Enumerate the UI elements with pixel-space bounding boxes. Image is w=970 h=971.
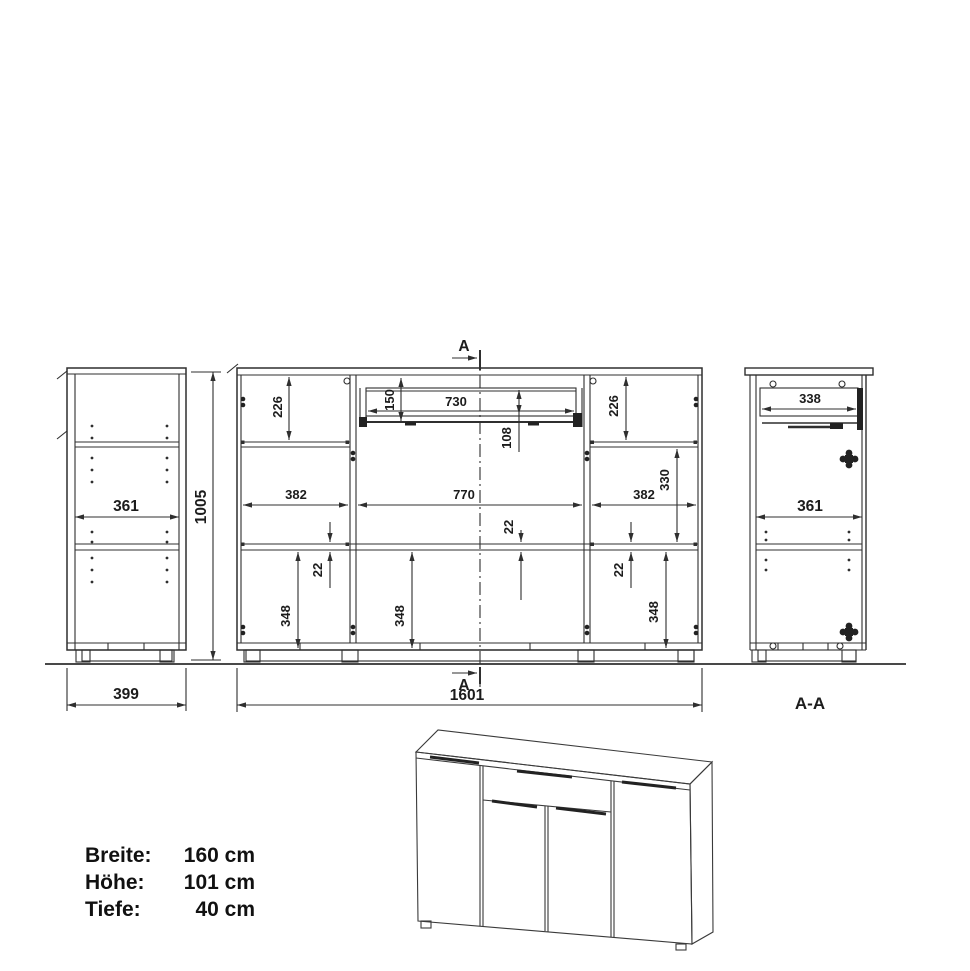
front-dim-226-right: 226 — [606, 395, 621, 417]
front-dim-770: 770 — [453, 487, 475, 502]
front-dim-22-right: 22 — [611, 563, 626, 577]
spec-label-breite: Breite: — [85, 842, 177, 869]
door-handles — [430, 757, 676, 814]
section-marker-a-top: A — [458, 338, 469, 355]
side-view — [57, 368, 221, 711]
section-marker-a-bottom: A — [458, 677, 469, 694]
spec-label-tiefe: Tiefe: — [85, 896, 177, 923]
section-dim-361: 361 — [797, 498, 823, 515]
front-dim-22-middle: 22 — [501, 520, 516, 534]
side-dim-399: 399 — [113, 686, 139, 703]
front-dim-348-right: 348 — [646, 601, 661, 623]
front-dim-348-middle: 348 — [392, 605, 407, 627]
front-dim-348-left: 348 — [278, 605, 293, 627]
front-dim-382-left: 382 — [285, 487, 307, 502]
spec-value-breite: 160 cm — [177, 842, 255, 869]
front-dim-150: 150 — [382, 389, 397, 411]
dimension-specs: Breite: 160 cm Höhe: 101 cm Tiefe: 40 cm — [85, 842, 255, 923]
hinge-marks — [241, 397, 699, 636]
front-dim-226-left: 226 — [270, 396, 285, 418]
side-dim-1005: 1005 — [193, 489, 210, 524]
hinge-plate-marks — [840, 450, 859, 642]
technical-drawing-svg: 361 1005 399 — [0, 0, 970, 971]
spec-row-tiefe: Tiefe: 40 cm — [85, 896, 255, 923]
section-dim-338: 338 — [799, 391, 821, 406]
front-dim-108: 108 — [499, 427, 514, 449]
front-dim-330: 330 — [657, 469, 672, 491]
furniture-dimension-drawing: 361 1005 399 — [0, 0, 970, 971]
section-title: A-A — [795, 694, 825, 713]
front-dim-22-left: 22 — [310, 563, 325, 577]
front-dim-382-right: 382 — [633, 487, 655, 502]
spec-value-tiefe: 40 cm — [177, 896, 255, 923]
spec-value-hoehe: 101 cm — [177, 869, 255, 896]
spec-row-breite: Breite: 160 cm — [85, 842, 255, 869]
spec-row-hoehe: Höhe: 101 cm — [85, 869, 255, 896]
sideboard-3d-render — [416, 730, 713, 950]
section-view — [745, 368, 873, 662]
spec-label-hoehe: Höhe: — [85, 869, 177, 896]
side-dim-361: 361 — [113, 498, 139, 515]
front-dim-730: 730 — [445, 394, 467, 409]
